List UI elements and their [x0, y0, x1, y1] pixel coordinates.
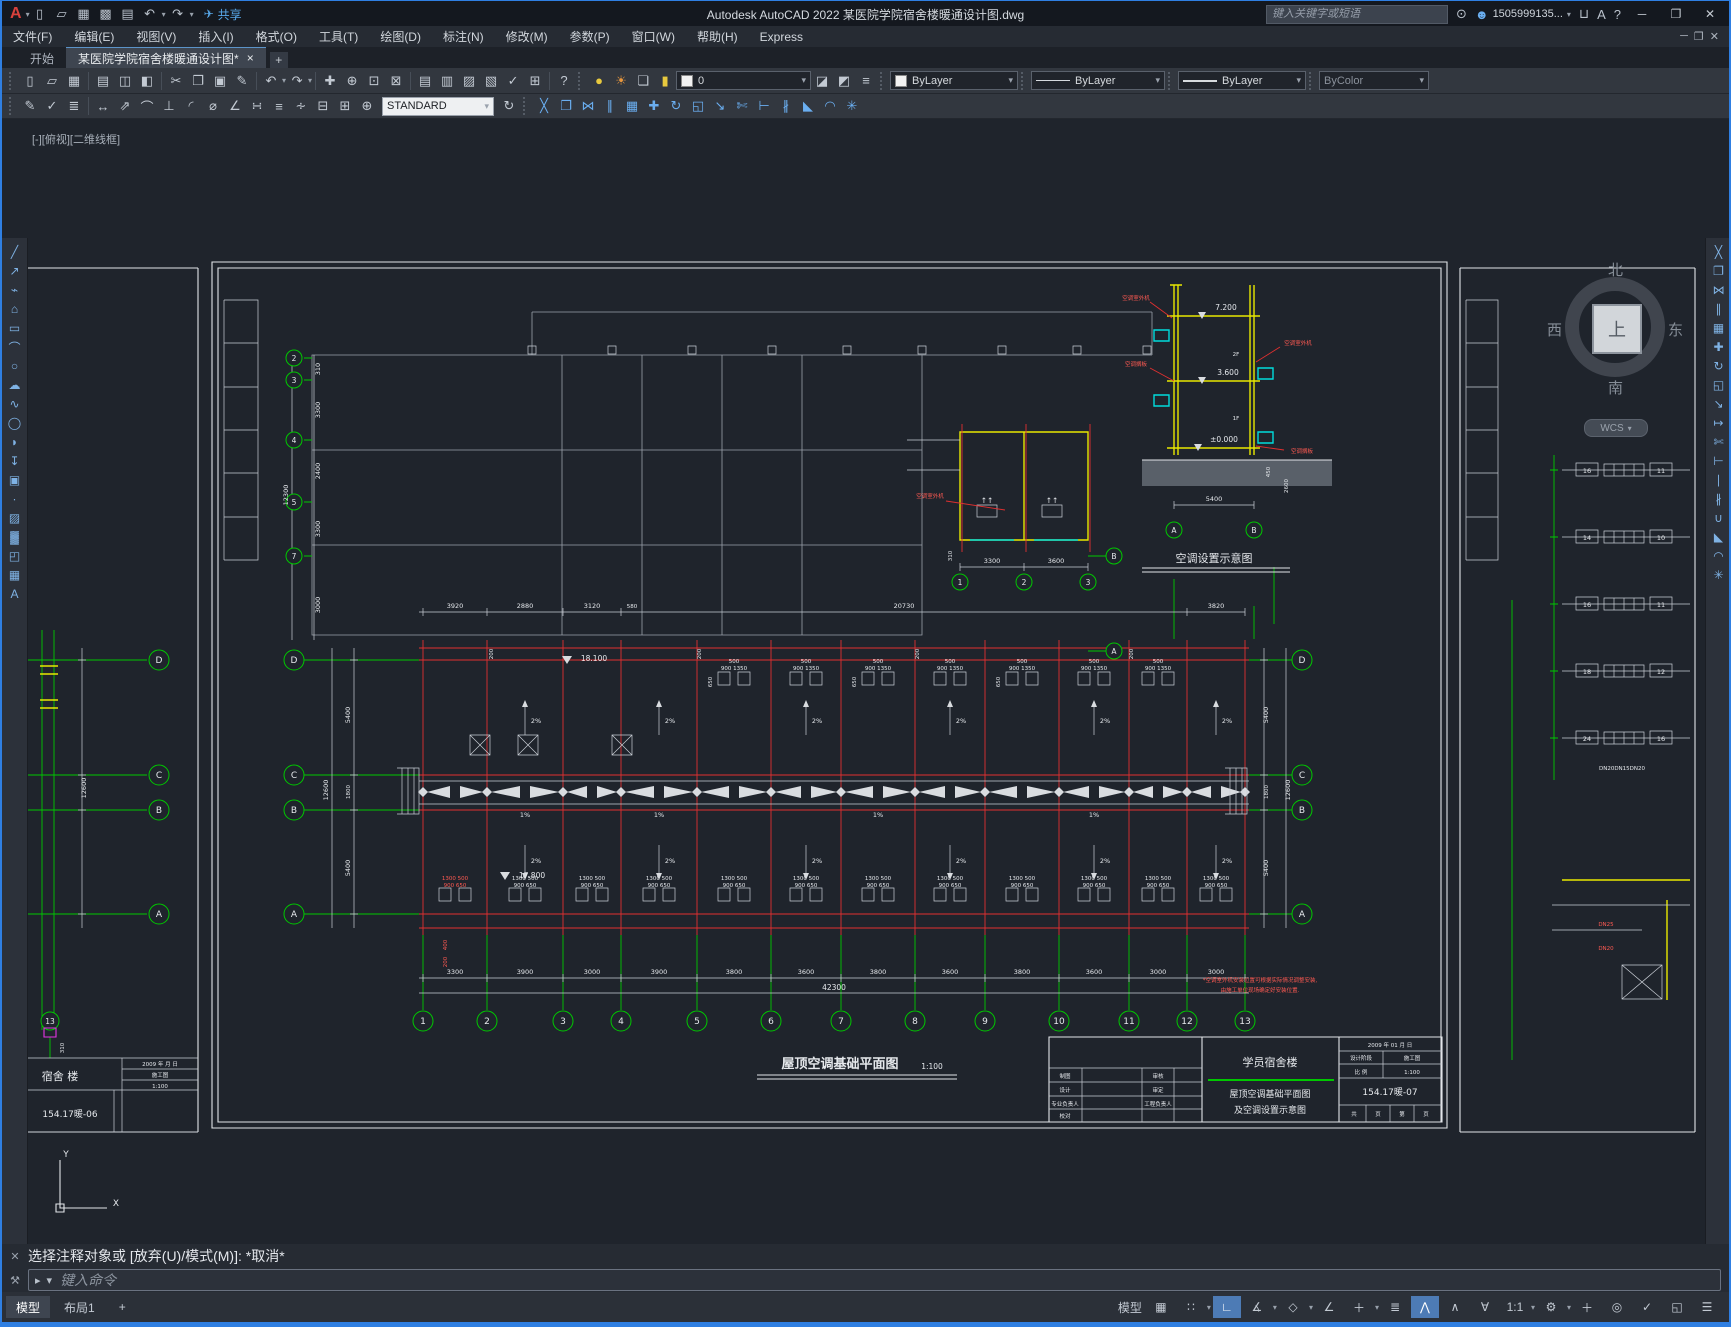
tab-add-layout[interactable]: + [109, 1296, 136, 1318]
break-point-icon[interactable]: ∣ [1708, 472, 1729, 488]
axis-bubble: 8 [912, 1017, 918, 1027]
main-plan-grid [419, 640, 1249, 935]
menu-insert[interactable]: 插入(I) [187, 26, 244, 47]
mtext-icon[interactable]: A [4, 586, 25, 602]
annotation: 空调室外机 [1122, 294, 1150, 302]
hatch-icon[interactable]: ▨ [4, 510, 25, 526]
ground-hatch [1142, 460, 1332, 486]
trim-icon[interactable]: ✄ [1708, 434, 1729, 450]
dim-text: 3920 [447, 602, 464, 610]
tab-start[interactable]: 开始 [18, 48, 66, 68]
dim-aligned-icon[interactable]: ⇗ [114, 95, 136, 117]
array-icon[interactable]: ▦ [1708, 320, 1729, 336]
dim-tolerance-icon[interactable]: ⊞ [334, 95, 356, 117]
qat-redo-icon[interactable]: ↷ [168, 4, 188, 24]
lengthen-icon[interactable]: ↦ [1708, 415, 1729, 431]
toolbar-grip[interactable] [9, 97, 16, 115]
publish-icon[interactable]: ◧ [136, 70, 158, 92]
axis-bubble: 10 [1053, 1017, 1065, 1027]
qat-new-icon[interactable]: ▯ [30, 4, 50, 24]
toolbar-grip[interactable] [9, 72, 16, 90]
ortho-toggle-icon[interactable]: ∟ [1213, 1296, 1241, 1318]
extend-icon[interactable]: ⊢ [753, 95, 775, 117]
dim-text: 3120 [584, 602, 601, 610]
trim-icon[interactable]: ✄ [731, 95, 753, 117]
line-icon[interactable]: ╱ [4, 244, 25, 260]
ucs-icon: Y X [56, 1150, 119, 1212]
axis-bubble: 3 [292, 376, 297, 385]
axis-bubble: A [1111, 647, 1117, 656]
axis-bubble: B [1299, 806, 1305, 816]
chamfer-icon[interactable]: ◣ [1708, 529, 1729, 545]
cut-icon[interactable]: ✂ [165, 70, 187, 92]
tb-pages: 共 [1351, 1110, 1357, 1118]
designcenter-icon[interactable]: ▥ [436, 70, 458, 92]
search-icon[interactable]: ⊙ [1456, 6, 1467, 22]
drawing-canvas[interactable]: 2 3 4 5 7 310 3300 2400 3300 3000 12300 [2, 119, 1731, 1244]
dyn-caret-icon[interactable]: ▾ [1375, 1303, 1379, 1312]
viewcube-south-label[interactable]: 南 [1608, 377, 1623, 398]
fillet-icon[interactable]: ◠ [819, 95, 841, 117]
menu-help[interactable]: 帮助(H) [686, 26, 749, 47]
gray-roof-outline [292, 312, 1152, 640]
color-swatch [895, 75, 907, 87]
command-history: ✕ 选择注释对象或 [放弃(U)/模式(M)]: *取消* [2, 1244, 1729, 1268]
qat-undo-caret-icon[interactable]: ▾ [162, 10, 166, 19]
dim-text: 650 [996, 676, 1002, 687]
customize-wrench-icon[interactable]: ⚒ [2, 1274, 28, 1287]
dim-text: 3820 [1208, 602, 1225, 610]
redo-icon[interactable]: ↷ [286, 70, 308, 92]
command-input-box[interactable]: ▸ ▾ [28, 1269, 1721, 1291]
dim-text: 900 650 [1083, 883, 1106, 889]
app-logo-icon[interactable]: A [10, 5, 22, 23]
pan-icon[interactable]: ✚ [319, 70, 341, 92]
toolbar-grip[interactable] [578, 72, 585, 90]
color-combo[interactable]: ByLayer ▾ [890, 71, 1018, 90]
layer-vp-icon[interactable]: ❏ [632, 70, 654, 92]
user-name: 1505999135... [1493, 8, 1563, 20]
qat-saveas-icon[interactable]: ▩ [96, 4, 116, 24]
polyline-icon[interactable]: ⌁ [4, 282, 25, 298]
dim-center-icon[interactable]: ⊕ [356, 95, 378, 117]
grid-toggle-icon[interactable]: ▦ [1147, 1296, 1175, 1318]
riser-num: 16 [1583, 467, 1591, 475]
erase-icon[interactable]: ╳ [1708, 244, 1729, 260]
lineweight-toggle-icon[interactable]: ≣ [1381, 1296, 1409, 1318]
ray-icon[interactable]: ↗ [4, 263, 25, 279]
level-label: 17.800 [519, 871, 545, 880]
polygon-icon[interactable]: ⌂ [4, 301, 25, 317]
dim-text: 900 1350 [1145, 666, 1172, 672]
copy-clip-icon[interactable]: ❐ [187, 70, 209, 92]
file-tabs: 开始 某医院学院宿舍楼暖通设计图* × + [2, 47, 1729, 68]
clean-screen-icon[interactable]: ◱ [1663, 1296, 1691, 1318]
save-icon[interactable]: ▦ [63, 70, 85, 92]
properties-icon[interactable]: ▤ [414, 70, 436, 92]
drawing: 2 3 4 5 7 310 3300 2400 3300 3000 12300 [2, 119, 1731, 1244]
circle-icon[interactable]: ○ [4, 358, 25, 374]
slope-label: 2% [956, 857, 966, 865]
isodraft-toggle-icon[interactable]: ◇ [1279, 1296, 1307, 1318]
gear-caret-icon[interactable]: ▾ [1567, 1303, 1571, 1312]
cart-icon[interactable]: ⊔ [1579, 6, 1589, 22]
make-block-icon[interactable]: ▣ [4, 472, 25, 488]
share-button[interactable]: ✈ 共享 [204, 6, 242, 23]
tb-value: 1:100 [1404, 1070, 1420, 1076]
menu-modify[interactable]: 修改(M) [495, 26, 559, 47]
osnap-tracking-icon[interactable]: ∧ [1441, 1296, 1469, 1318]
plotstyle-combo[interactable]: ByColor ▾ [1319, 71, 1429, 90]
menu-edit[interactable]: 编辑(E) [63, 26, 125, 47]
tb-role: 工程负责人 [1144, 1100, 1172, 1108]
ellipse-icon[interactable]: ◯ [4, 415, 25, 431]
toolbar-grip[interactable] [1021, 72, 1028, 90]
floor-label: 1F [1233, 416, 1240, 422]
close-button[interactable]: ✕ [1697, 4, 1723, 24]
dim-break-icon[interactable]: ⊟ [312, 95, 334, 117]
window-edge [2, 1322, 1729, 1327]
otrack-toggle-icon[interactable]: ∠ [1315, 1296, 1343, 1318]
text-style-combo[interactable]: STANDARD ▾ [382, 97, 494, 116]
markup-icon[interactable]: ✓ [502, 70, 524, 92]
wcs-selector[interactable]: WCS ▾ [1584, 419, 1648, 437]
menu-draw[interactable]: 绘图(D) [369, 26, 432, 47]
customization-menu-icon[interactable]: ☰ [1693, 1296, 1721, 1318]
help-icon[interactable]: ? [1614, 7, 1621, 22]
slope-label: 1% [520, 811, 530, 819]
dim-text: 900 1350 [1009, 666, 1036, 672]
undo-icon[interactable]: ↶ [260, 70, 282, 92]
annotation: 空调室外机 [916, 492, 944, 500]
dim-angular-icon[interactable]: ∠ [224, 95, 246, 117]
viewcube-west-label[interactable]: 西 [1547, 319, 1562, 340]
layer-value: 0 [698, 75, 704, 87]
toolbar-grip[interactable] [523, 97, 530, 115]
dim-radius-icon[interactable]: ◜ [180, 95, 202, 117]
osnap-toggle-icon[interactable]: ⋀ [1411, 1296, 1439, 1318]
dim-text: 900 1350 [865, 666, 892, 672]
annotation: 空调室外机 [1284, 339, 1312, 347]
fillet-icon[interactable]: ◠ [1708, 548, 1729, 564]
table-icon[interactable]: ▦ [4, 567, 25, 583]
level-label: 7.200 [1215, 303, 1237, 312]
layer-thaw-icon[interactable]: ☀ [610, 70, 632, 92]
model-space-button[interactable]: 模型 [1115, 1296, 1145, 1318]
axis-bubble: 5 [694, 1017, 700, 1027]
join-icon[interactable]: ∪ [1708, 510, 1729, 526]
toolbar-grip[interactable] [1309, 72, 1316, 90]
paste-icon[interactable]: ▣ [209, 70, 231, 92]
dim-text: 900 1350 [721, 666, 748, 672]
zoom-window-icon[interactable]: ⊡ [363, 70, 385, 92]
dim-ordinate-icon[interactable]: ⊥ [158, 95, 180, 117]
linetype-combo[interactable]: ByLayer ▾ [1031, 71, 1165, 90]
break-icon[interactable]: ∦ [1708, 491, 1729, 507]
command-caret-icon[interactable]: ▾ [47, 1274, 53, 1287]
scale-icon[interactable]: ◱ [687, 95, 709, 117]
viewcube-north-label[interactable]: 北 [1608, 259, 1623, 280]
floor-label: 2F [1233, 352, 1240, 358]
scale-caret-icon[interactable]: ▾ [1531, 1303, 1535, 1312]
command-input[interactable] [58, 1271, 1714, 1289]
search-input[interactable] [1266, 5, 1448, 24]
rotate-icon[interactable]: ↻ [665, 95, 687, 117]
level-label: ±0.000 [1210, 435, 1238, 444]
mirror-icon[interactable]: ⋈ [577, 95, 599, 117]
isolate-objects-icon[interactable]: ◎ [1603, 1296, 1631, 1318]
tab-drawing[interactable]: 某医院学院宿舍楼暖通设计图* × [66, 47, 266, 68]
arc-icon[interactable]: ⌒ [4, 339, 25, 355]
axis-bubble: 1 [420, 1017, 426, 1027]
right-sheet: 16 11 14 10 16 11 18 12 24 16 DN20DN15DN… [1552, 463, 1690, 1000]
dim-text: 900 650 [795, 883, 818, 889]
doc-restore-icon[interactable]: ❐ [1694, 30, 1704, 43]
annotation-scale-button[interactable]: 1:1 [1501, 1296, 1529, 1318]
polar-toggle-icon[interactable]: ∡ [1243, 1296, 1271, 1318]
dynamic-input-icon[interactable]: ＋ [1345, 1296, 1373, 1318]
layer-lock-icon[interactable]: ▮ [654, 70, 676, 92]
dim-text: 500 [801, 659, 812, 665]
region-icon[interactable]: ◰ [4, 548, 25, 564]
new-icon[interactable]: ▯ [19, 70, 41, 92]
toolbar-grip[interactable] [1168, 72, 1175, 90]
drawing-scale: 1:100 [921, 1062, 943, 1071]
dim-text: 12600 [80, 778, 88, 799]
axis-bubble: 2 [1022, 578, 1027, 587]
explode-icon[interactable]: ✳ [841, 95, 863, 117]
dim-quick-icon[interactable]: ∺ [246, 95, 268, 117]
tool-palettes-icon[interactable]: ▨ [458, 70, 480, 92]
dim-text: 3300 [314, 402, 322, 419]
dim-text: 3600 [942, 968, 959, 976]
riser-num: 10 [1657, 534, 1665, 542]
qat-plot-icon[interactable]: ▤ [118, 4, 138, 24]
layer-previous-icon[interactable]: ◩ [833, 70, 855, 92]
maximize-button[interactable]: ❐ [1663, 4, 1689, 24]
stretch-icon[interactable]: ↘ [1708, 396, 1729, 412]
tb-role: 校对 [1059, 1112, 1071, 1120]
osnap-3d-icon[interactable]: ∀ [1471, 1296, 1499, 1318]
user-account[interactable]: ☻ 1505999135... ▾ [1475, 7, 1571, 22]
riser-num: 18 [1583, 668, 1591, 676]
axis-bubble: C [1299, 771, 1305, 781]
move-icon[interactable]: ✚ [643, 95, 665, 117]
dim-text: 3900 [651, 968, 668, 976]
redo-caret-icon[interactable]: ▾ [308, 76, 312, 85]
slope-label: 2% [956, 717, 966, 725]
menu-file[interactable]: 文件(F) [2, 26, 63, 47]
slope-label: 2% [531, 857, 541, 865]
note-line: 由施工单位现场确定好安装位置. [1221, 986, 1300, 994]
riser-num: 14 [1583, 534, 1591, 542]
tb-value: 施工图 [152, 1071, 169, 1079]
autodesk-apps-icon[interactable]: A [1597, 7, 1606, 22]
linetype-sample [1036, 80, 1070, 81]
color-combo-caret-icon: ▾ [1009, 75, 1014, 86]
viewport-controls[interactable]: [-][俯视][二维线框] [32, 131, 120, 147]
spline-icon[interactable]: ∿ [4, 396, 25, 412]
dim-update-icon[interactable]: ↻ [498, 95, 520, 117]
toolbar-grip[interactable] [880, 72, 887, 90]
layer-on-icon[interactable]: ● [588, 70, 610, 92]
graphics-check-icon[interactable]: ✓ [1633, 1296, 1661, 1318]
toolbar-help-icon[interactable]: ? [553, 70, 575, 92]
move-icon[interactable]: ✚ [1708, 339, 1729, 355]
gradient-icon[interactable]: ▓ [4, 529, 25, 545]
dim-linear-icon[interactable]: ↔ [92, 95, 114, 117]
plot-icon[interactable]: ▤ [92, 70, 114, 92]
explode-icon[interactable]: ✳ [1708, 567, 1729, 583]
level-label: 18.100 [581, 654, 607, 663]
dim-text: 200 [1129, 648, 1135, 659]
polar-caret-icon[interactable]: ▾ [1273, 1303, 1277, 1312]
tb-project: 学员宿舍楼 [1243, 1055, 1298, 1069]
doc-close-icon[interactable]: ✕ [1710, 30, 1719, 43]
color-value: ByLayer [912, 75, 952, 87]
match-properties-icon[interactable]: ✎ [231, 70, 253, 92]
quickcalc-icon[interactable]: ⊞ [524, 70, 546, 92]
riser-num: 12 [1657, 668, 1665, 676]
lineweight-combo[interactable]: ByLayer ▾ [1178, 71, 1306, 90]
menu-view[interactable]: 视图(V) [125, 26, 187, 47]
dim-text: 500 [1089, 659, 1100, 665]
dim-arclength-icon[interactable]: ⌒ [136, 95, 158, 117]
annotation: 空调搁板 [1291, 447, 1314, 455]
chamfer-icon[interactable]: ◣ [797, 95, 819, 117]
revcloud-icon[interactable]: ☁ [4, 377, 25, 393]
menu-parametric[interactable]: 参数(P) [559, 26, 621, 47]
quick-access-toolbar: ▯ ▱ ▦ ▩ ▤ ↶ ▾ ↷ ▾ [30, 4, 194, 24]
axis-bubble: 9 [982, 1017, 988, 1027]
slope-label: 1% [873, 811, 883, 819]
viewcube[interactable]: 上 北 南 西 东 [1547, 259, 1683, 395]
workspace-gear-icon[interactable]: ⚙ [1537, 1296, 1565, 1318]
dim-text: 3800 [726, 968, 743, 976]
dim-baseline-icon[interactable]: ≡ [268, 95, 290, 117]
command-close-icon[interactable]: ✕ [2, 1250, 28, 1263]
layer-states-icon[interactable]: ≡ [855, 70, 877, 92]
tab-layout1[interactable]: 布局1 [54, 1296, 105, 1318]
make-layer-current-icon[interactable]: ◪ [811, 70, 833, 92]
erase-icon[interactable]: ╳ [533, 95, 555, 117]
tab-close-icon[interactable]: × [247, 51, 254, 65]
dim-style-icon[interactable]: ≣ [63, 95, 85, 117]
new-tab-button[interactable]: + [270, 52, 288, 68]
menu-format[interactable]: 格式(O) [245, 26, 308, 47]
riser-num: 11 [1657, 467, 1665, 475]
ellipse-arc-icon[interactable]: ◗ [4, 434, 25, 450]
doc-minimize-icon[interactable]: ─ [1680, 30, 1688, 43]
viewcube-east-label[interactable]: 东 [1668, 319, 1683, 340]
dim-continue-icon[interactable]: ∻ [290, 95, 312, 117]
tb-name: 屋顶空调基础平面图 [1229, 1088, 1310, 1100]
dim-check-icon[interactable]: ✓ [41, 95, 63, 117]
dim-text: 500 [1017, 659, 1028, 665]
minimize-button[interactable]: ─ [1629, 4, 1655, 24]
scale-icon[interactable]: ◱ [1708, 377, 1729, 393]
insert-block-icon[interactable]: ↧ [4, 453, 25, 469]
copy-icon[interactable]: ❐ [1708, 263, 1729, 279]
tb-label: 比 例 [1355, 1068, 1368, 1076]
dim-text: 3600 [1048, 557, 1065, 565]
viewcube-top-face[interactable]: 上 [1592, 304, 1642, 354]
menu-dimension[interactable]: 标注(N) [432, 26, 495, 47]
lineweight-combo-caret-icon: ▾ [1297, 75, 1302, 86]
pipe-label: DN20 [1598, 946, 1614, 952]
dim-edit-icon[interactable]: ✎ [19, 95, 41, 117]
array-icon[interactable]: ▦ [621, 95, 643, 117]
qat-redo-caret-icon[interactable]: ▾ [190, 10, 194, 19]
snap-caret-icon[interactable]: ▾ [1207, 1303, 1211, 1312]
dim-text: 3300 [314, 521, 322, 538]
axis-bubble: 7 [838, 1017, 844, 1027]
text-style-value: STANDARD [387, 100, 447, 112]
ucs-y-label: Y [62, 1150, 69, 1160]
dim-text: 900 650 [723, 883, 746, 889]
zoom-realtime-icon[interactable]: ⊕ [341, 70, 363, 92]
dim-text: 500 [1153, 659, 1164, 665]
sheet-set-manager-icon[interactable]: ▧ [480, 70, 502, 92]
titlebar-right: ⊙ ☻ 1505999135... ▾ ⊔ A ? ─ ❐ ✕ [1266, 4, 1729, 24]
dim-text: 3300 [984, 557, 1001, 565]
qat-save-icon[interactable]: ▦ [74, 4, 94, 24]
dim-text: 650 [852, 676, 858, 687]
axis-bubble: 2 [292, 354, 297, 363]
tab-model[interactable]: 模型 [6, 1296, 50, 1318]
annotation-add-icon[interactable]: ＋ [1573, 1296, 1601, 1318]
rectangle-icon[interactable]: ▭ [4, 320, 25, 336]
unit-plan: ↑↑ ↑↑ 空调室外机 3300 3600 310 1 2 3 B A [907, 424, 1122, 659]
axis-bubble: 1 [958, 578, 963, 587]
stretch-icon[interactable]: ↘ [709, 95, 731, 117]
ucs-x-label: X [113, 1199, 119, 1209]
point-icon[interactable]: ∙ [4, 491, 25, 507]
dim-diameter-icon[interactable]: ⌀ [202, 95, 224, 117]
snap-toggle-icon[interactable]: ∷ [1177, 1296, 1205, 1318]
rotate-icon[interactable]: ↻ [1708, 358, 1729, 374]
qat-undo-icon[interactable]: ↶ [140, 4, 160, 24]
plot-preview-icon[interactable]: ◫ [114, 70, 136, 92]
offset-icon[interactable]: ∥ [1708, 301, 1729, 317]
open-icon[interactable]: ▱ [41, 70, 63, 92]
dim-text: 1300 500 [1145, 876, 1172, 882]
slope-label: 2% [1222, 857, 1232, 865]
menu-express[interactable]: Express [749, 26, 814, 47]
tb-label: 设计阶段 [1350, 1054, 1373, 1062]
zoom-previous-icon[interactable]: ⊠ [385, 70, 407, 92]
isodraft-caret-icon[interactable]: ▾ [1309, 1303, 1313, 1312]
offset-icon[interactable]: ∥ [599, 95, 621, 117]
dim-text: 200 [489, 648, 495, 659]
share-icon: ✈ [204, 7, 214, 21]
axis-bubble: 5 [292, 498, 297, 507]
break-icon[interactable]: ∦ [775, 95, 797, 117]
qat-open-icon[interactable]: ▱ [52, 4, 72, 24]
tab-start-label: 开始 [30, 50, 54, 67]
axis-bubble: D [156, 656, 163, 666]
note-line: *空调室外机安装位置可根据实际情况调整安装, [1203, 976, 1318, 984]
dim-text: 900 650 [1011, 883, 1034, 889]
layer-combo[interactable]: 0 ▾ [676, 71, 811, 90]
axis-bubble: 2 [484, 1017, 490, 1027]
extend-icon[interactable]: ⊢ [1708, 453, 1729, 469]
mirror-icon[interactable]: ⋈ [1708, 282, 1729, 298]
menu-tools[interactable]: 工具(T) [308, 26, 369, 47]
menu-window[interactable]: 窗口(W) [621, 26, 686, 47]
copy-icon[interactable]: ❐ [555, 95, 577, 117]
window-title: Autodesk AutoCAD 2022 某医院学院宿舍楼暖通设计图.dwg [707, 6, 1024, 23]
